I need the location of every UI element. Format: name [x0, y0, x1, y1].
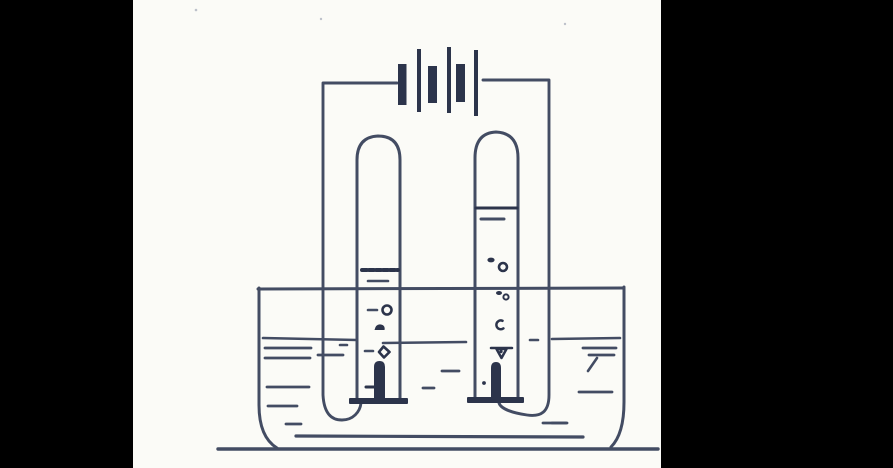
electrolysis-diagram: [0, 0, 893, 468]
battery-plate-thick: [456, 64, 465, 102]
trough-rim: [258, 288, 624, 289]
bubble: [496, 291, 502, 295]
speck: [320, 18, 322, 20]
electrode-stand-left: [349, 398, 408, 404]
battery-plate-thin: [447, 47, 451, 113]
electrode-right: [491, 362, 501, 399]
bubble-dot: [499, 350, 502, 353]
trough-inner-bottom: [296, 436, 583, 437]
battery-plate-thick: [428, 66, 437, 103]
battery-plate-thin: [474, 50, 478, 116]
bubble-dot: [482, 381, 486, 385]
electrode-stand-right: [467, 397, 524, 403]
water-surface-segment: [552, 338, 620, 339]
water-surface-segment: [383, 342, 466, 343]
scanned-page: [0, 0, 893, 468]
battery-plate-thin: [417, 49, 421, 112]
paper-background: [133, 0, 661, 468]
bubble: [487, 258, 494, 263]
speck: [195, 9, 198, 12]
electrode-left: [374, 361, 385, 402]
battery-plate-thick: [398, 64, 407, 105]
speck: [564, 23, 566, 25]
